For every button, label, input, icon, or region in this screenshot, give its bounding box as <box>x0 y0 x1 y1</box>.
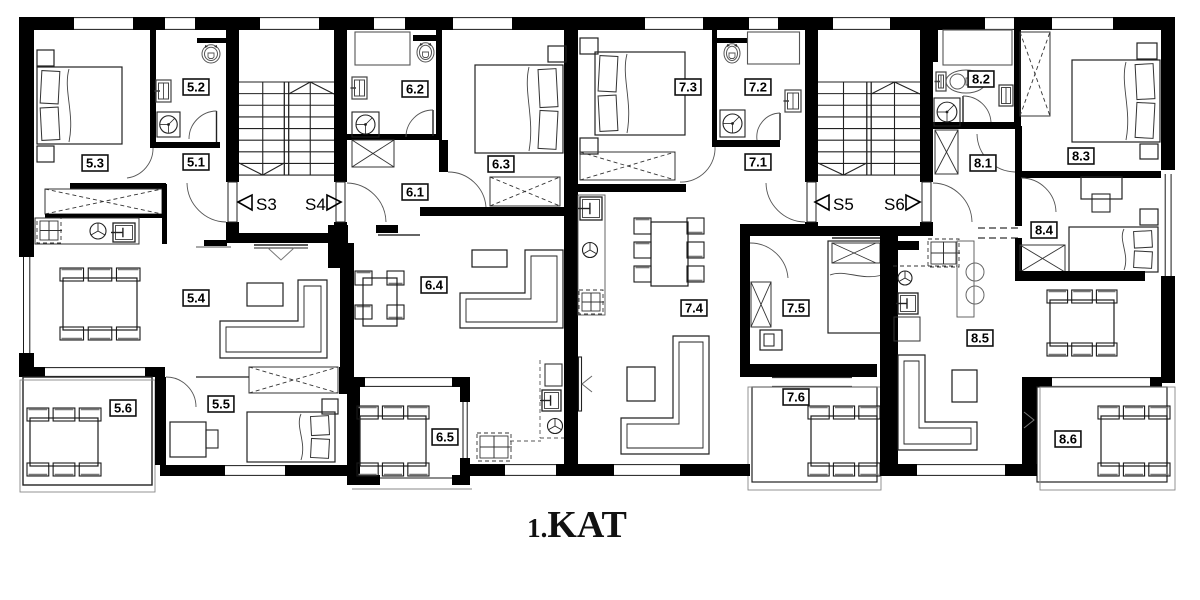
svg-text:6.5: 6.5 <box>436 430 454 445</box>
svg-text:8.4: 8.4 <box>1035 223 1054 238</box>
svg-text:7.2: 7.2 <box>749 80 767 95</box>
svg-text:5.6: 5.6 <box>114 401 132 416</box>
svg-text:S5: S5 <box>833 195 854 214</box>
svg-text:6.2: 6.2 <box>406 82 424 97</box>
svg-text:8.3: 8.3 <box>1072 149 1090 164</box>
svg-text:5.2: 5.2 <box>187 80 205 95</box>
svg-text:6.3: 6.3 <box>492 157 510 172</box>
svg-text:7.4: 7.4 <box>685 301 704 316</box>
svg-text:5.4: 5.4 <box>187 291 206 306</box>
svg-text:7.6: 7.6 <box>787 390 805 405</box>
svg-text:7.5: 7.5 <box>787 301 805 316</box>
svg-text:6.1: 6.1 <box>406 185 424 200</box>
svg-text:6.4: 6.4 <box>425 278 444 293</box>
svg-text:7.3: 7.3 <box>679 80 697 95</box>
svg-text:8.1: 8.1 <box>974 156 992 171</box>
svg-text:5.5: 5.5 <box>212 397 230 412</box>
svg-text:S3: S3 <box>256 195 277 214</box>
svg-text:8.6: 8.6 <box>1059 432 1077 447</box>
svg-text:S4: S4 <box>305 195 326 214</box>
svg-text:8.2: 8.2 <box>972 72 990 87</box>
svg-text:5.3: 5.3 <box>86 156 104 171</box>
svg-text:8.5: 8.5 <box>971 331 989 346</box>
svg-text:7.1: 7.1 <box>749 155 767 170</box>
svg-text:5.1: 5.1 <box>187 155 205 170</box>
svg-text:S6: S6 <box>884 195 905 214</box>
